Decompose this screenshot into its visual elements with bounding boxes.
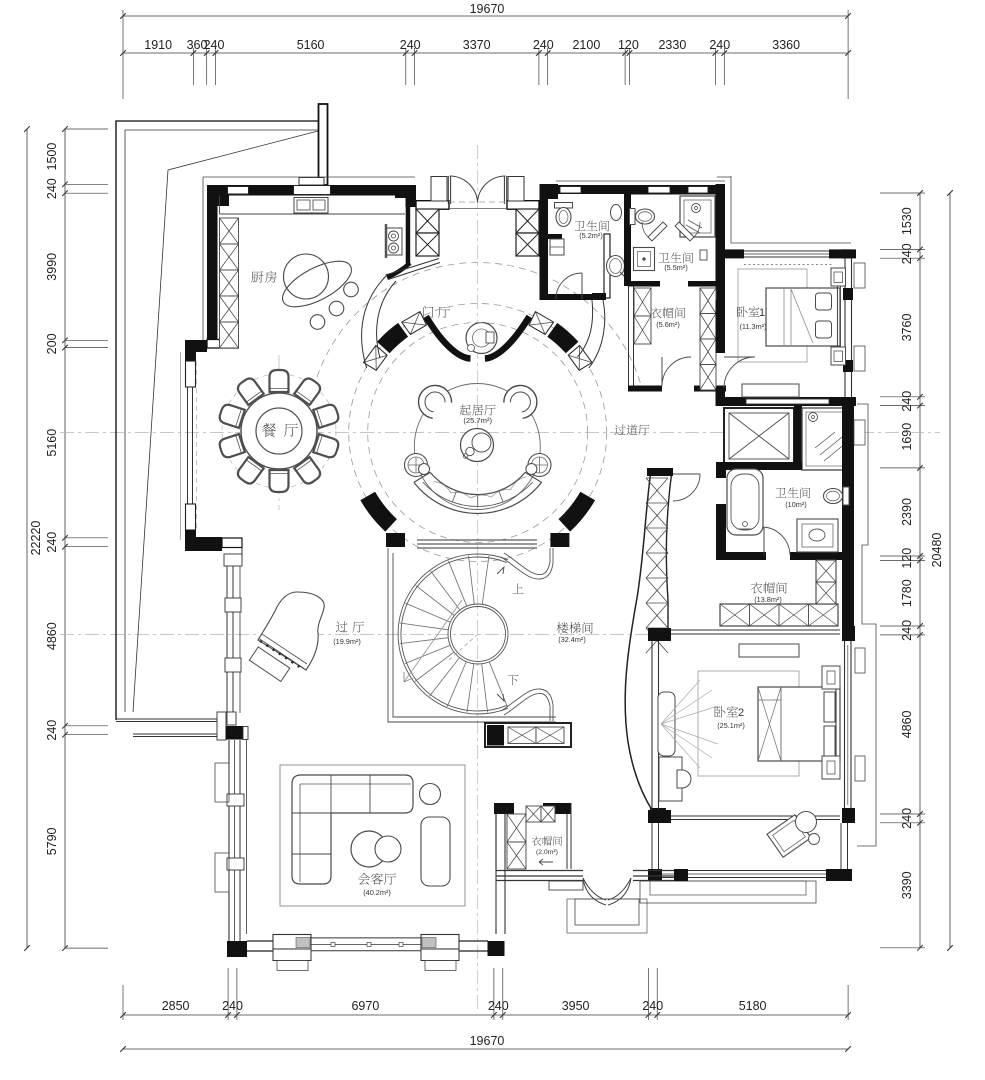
svg-text:5160: 5160 — [45, 429, 59, 457]
svg-text:(11.3m²): (11.3m²) — [739, 322, 766, 331]
svg-text:(10m²): (10m²) — [785, 500, 807, 509]
svg-text:(32.4m²): (32.4m²) — [558, 635, 586, 644]
svg-text:(25.7m²): (25.7m²) — [463, 416, 492, 425]
svg-text:1: 1 — [759, 307, 765, 319]
svg-text:240: 240 — [488, 999, 509, 1013]
svg-text:(40.2m²): (40.2m²) — [363, 888, 391, 897]
svg-text:3760: 3760 — [900, 314, 914, 342]
svg-text:240: 240 — [400, 38, 421, 52]
svg-text:2330: 2330 — [658, 38, 686, 52]
svg-text:240: 240 — [642, 999, 663, 1013]
svg-text:(19.9m²): (19.9m²) — [333, 637, 361, 646]
svg-text:4860: 4860 — [900, 710, 914, 738]
svg-text:20480: 20480 — [930, 533, 944, 568]
svg-text:240: 240 — [900, 391, 914, 412]
svg-text:19670: 19670 — [470, 2, 505, 16]
svg-text:240: 240 — [222, 999, 243, 1013]
svg-text:22220: 22220 — [29, 521, 43, 556]
svg-text:(25.1m²): (25.1m²) — [717, 721, 745, 730]
svg-text:2: 2 — [738, 707, 744, 719]
svg-text:240: 240 — [204, 38, 225, 52]
svg-text:3370: 3370 — [463, 38, 491, 52]
svg-text:1530: 1530 — [900, 207, 914, 235]
svg-text:5180: 5180 — [739, 999, 767, 1013]
svg-text:4860: 4860 — [45, 622, 59, 650]
svg-text:120: 120 — [618, 38, 639, 52]
svg-text:3990: 3990 — [45, 253, 59, 281]
svg-text:5790: 5790 — [45, 827, 59, 855]
svg-text:5160: 5160 — [297, 38, 325, 52]
svg-text:3390: 3390 — [900, 871, 914, 899]
svg-text:240: 240 — [900, 808, 914, 829]
svg-text:240: 240 — [45, 178, 59, 199]
svg-text:240: 240 — [900, 620, 914, 641]
svg-text:2390: 2390 — [900, 498, 914, 526]
svg-text:2850: 2850 — [162, 999, 190, 1013]
svg-text:1780: 1780 — [900, 579, 914, 607]
svg-text:1690: 1690 — [900, 423, 914, 451]
svg-text:240: 240 — [533, 38, 554, 52]
svg-text:3950: 3950 — [562, 999, 590, 1013]
svg-text:(5.6m²): (5.6m²) — [656, 320, 680, 329]
svg-text:3360: 3360 — [772, 38, 800, 52]
svg-text:(13.8m²): (13.8m²) — [754, 595, 782, 604]
svg-text:240: 240 — [45, 720, 59, 741]
svg-text:(2.0m²): (2.0m²) — [536, 849, 558, 856]
svg-text:(5.5m²): (5.5m²) — [664, 263, 688, 272]
svg-text:2100: 2100 — [572, 38, 600, 52]
svg-text:240: 240 — [45, 532, 59, 553]
svg-text:(5.2m²): (5.2m²) — [579, 231, 603, 240]
svg-text:6970: 6970 — [351, 999, 379, 1013]
svg-text:120: 120 — [900, 548, 914, 569]
svg-text:1500: 1500 — [45, 143, 59, 171]
svg-text:19670: 19670 — [470, 1034, 505, 1048]
svg-text:240: 240 — [900, 243, 914, 264]
svg-text:240: 240 — [709, 38, 730, 52]
svg-text:200: 200 — [45, 333, 59, 354]
svg-text:1910: 1910 — [144, 38, 172, 52]
